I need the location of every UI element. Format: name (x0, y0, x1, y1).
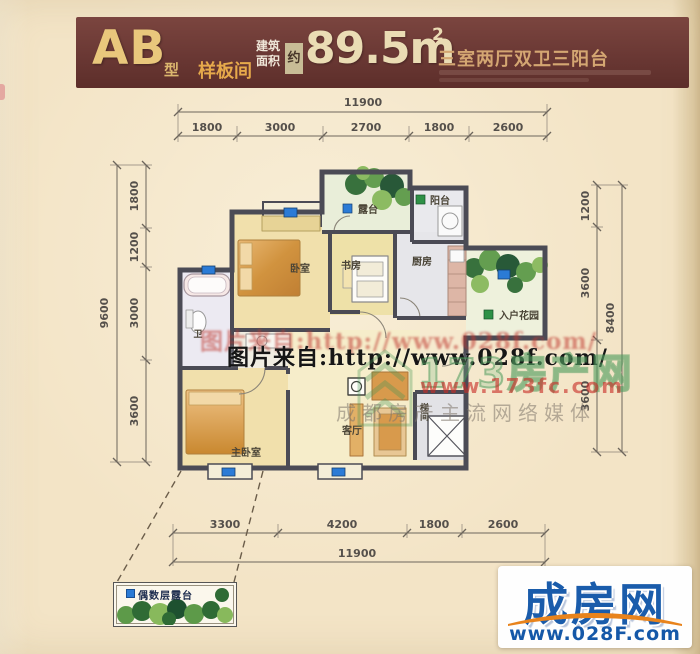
kitchen-label: 厨房 (412, 255, 432, 268)
watermark-site-url: www.173fc.com (420, 374, 624, 398)
dim-right-seg: 3600 (579, 267, 592, 298)
dim-top-seg: 1800 (192, 121, 223, 134)
chengfangwang-logo: 成房网 www.028F.com (498, 566, 692, 648)
logo-url: www.028F.com (498, 623, 692, 645)
dim-right-total: 8400 (604, 302, 617, 333)
dim-top-seg: 3000 (265, 121, 296, 134)
entry-garden-label: 入户花园 (499, 309, 539, 322)
dim-right-seg: 1200 (579, 190, 592, 221)
dim-top-seg: 1800 (424, 121, 455, 134)
master-bedroom-label: 主卧室 (231, 446, 261, 459)
scan-artifact (0, 84, 5, 100)
dim-top-total: 11900 (344, 96, 383, 109)
dim-left-total: 9600 (98, 297, 111, 328)
dim-left-seg: 1800 (128, 180, 141, 211)
dim-left-seg: 3600 (128, 395, 141, 426)
dim-bottom-total: 11900 (338, 547, 377, 560)
dim-bottom-seg: 1800 (419, 518, 450, 531)
dim-top-seg: 2700 (351, 121, 382, 134)
even-floor-terrace-legend: 偶数层露台 (113, 582, 237, 627)
floorplan-page: AB 型 样板间 建筑 面积 约 89.5m 2 三室两厅双卫三阳台 (0, 0, 700, 654)
dim-bottom-seg: 2600 (488, 518, 519, 531)
dim-bottom-seg: 3300 (210, 518, 241, 531)
dim-top-seg: 2600 (493, 121, 524, 134)
legend-blue-square (126, 589, 135, 598)
bedroom-label: 卧室 (290, 262, 310, 275)
legend-label: 偶数层露台 (138, 587, 193, 602)
dim-left-seg: 3000 (128, 297, 141, 328)
watermark-site-slogan: 成都房产主流网络媒体 (336, 397, 596, 426)
balcony-label: 阳台 (430, 194, 450, 207)
dim-bottom-seg: 4200 (327, 518, 358, 531)
terrace-label: 露台 (358, 203, 378, 216)
study-label: 书房 (341, 259, 361, 272)
legend-connectors (117, 471, 263, 582)
dim-left-seg: 1200 (128, 231, 141, 262)
